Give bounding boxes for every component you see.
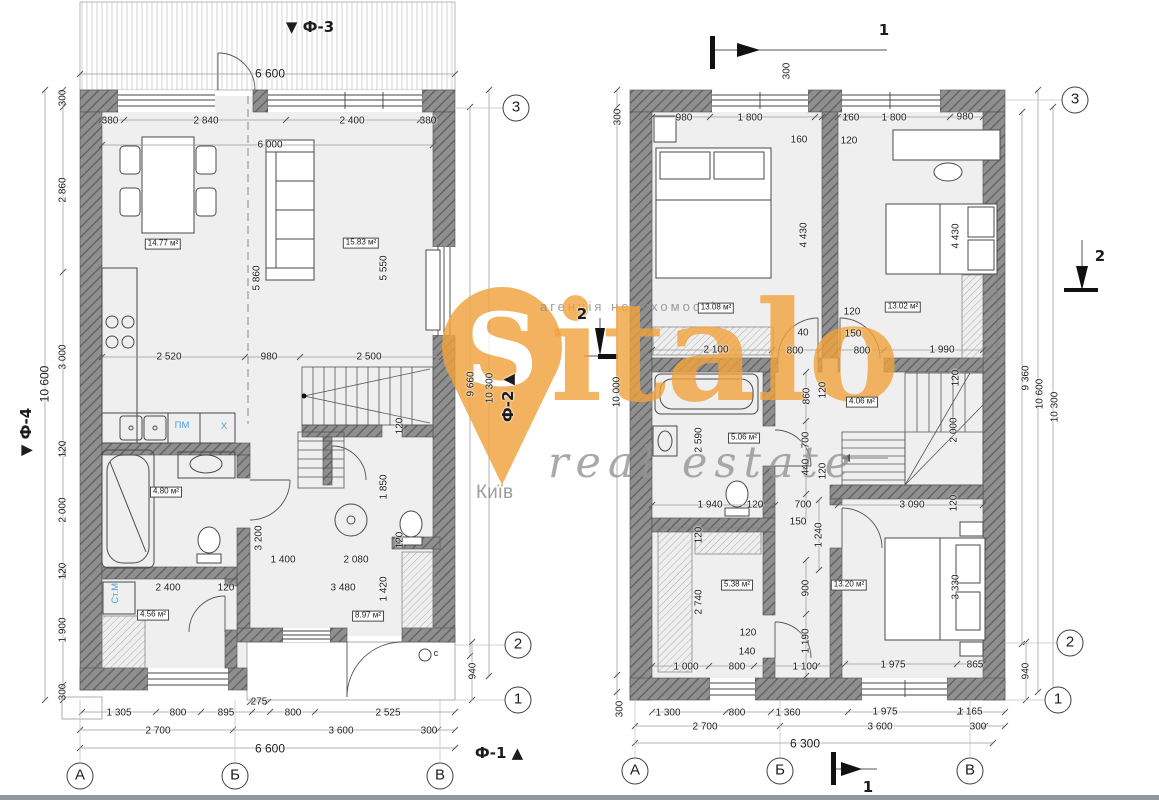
dimension-label: 2 525 xyxy=(375,708,400,719)
dimension-label: 800 xyxy=(787,346,804,357)
dimension-label: 940 xyxy=(1021,663,1032,680)
dimension-label: 4 430 xyxy=(951,223,962,248)
dimension-label: 9 360 xyxy=(1021,365,1032,390)
dimension-label: 10 000 xyxy=(612,377,623,408)
dimension-label: 2 500 xyxy=(356,352,381,363)
grid-axis-bubble: В xyxy=(957,758,984,785)
dimension-label: 1 900 xyxy=(58,617,69,642)
dimension-label: 1 800 xyxy=(881,113,906,124)
dimension-label: 120 xyxy=(694,527,705,544)
dimension-label: 2 400 xyxy=(339,116,364,127)
dimension-label: 980 xyxy=(676,113,693,124)
dimension-label: 1 100 xyxy=(792,662,817,673)
dimension-label: 120 xyxy=(949,495,960,512)
dimension-label: 860 xyxy=(802,388,813,405)
dimension-label: 1 800 xyxy=(737,113,762,124)
dimension-label: 440 xyxy=(801,459,812,476)
appliance-label: ПМ xyxy=(175,421,190,431)
dimension-label: 2 080 xyxy=(343,555,368,566)
dimension-label: 6 600 xyxy=(255,742,285,755)
dimension-label: 6 600 xyxy=(255,67,285,80)
dimension-label: 300 xyxy=(782,63,793,80)
dimension-label: 865 xyxy=(967,660,984,671)
dimension-label: 3 480 xyxy=(330,583,355,594)
dimension-label: 700 xyxy=(795,500,812,511)
dimension-label: 980 xyxy=(957,112,974,123)
facade-marker-label: Ф-2 ▲ xyxy=(500,374,517,422)
dimension-label: 700 xyxy=(801,432,812,449)
dimension-label: 3 200 xyxy=(254,525,265,550)
dimension-label: 150 xyxy=(790,517,807,528)
grid-axis-bubble: А xyxy=(622,758,649,785)
dimension-label: 2 700 xyxy=(145,726,170,737)
section-marker-label: 2 xyxy=(577,306,587,323)
dimension-label: 120 xyxy=(951,370,962,387)
dimension-label: c xyxy=(434,649,439,659)
section-marker-label: 2 xyxy=(1095,248,1105,265)
grid-axis-bubble: Б xyxy=(767,758,794,785)
dimension-label: 150 xyxy=(845,329,862,340)
dimension-label: 1 420 xyxy=(379,576,390,601)
dimension-label: 980 xyxy=(261,352,278,363)
room-area-label: 4.56 м² xyxy=(137,610,169,621)
dimension-label: 40 xyxy=(797,328,808,339)
dimension-label: 10 300 xyxy=(485,373,496,404)
dimension-label: 900 xyxy=(801,580,812,597)
dimension-label: 300 xyxy=(970,722,987,733)
room-area-label: 14.77 м² xyxy=(145,239,181,250)
facade-marker-label: ▼ Ф-4 xyxy=(18,408,35,456)
room-area-label: 15.83 м² xyxy=(343,238,379,249)
plan-labels-layer: ▼ Ф-36 6003802 8402 4003806 0003002 8603… xyxy=(0,0,1159,800)
dimension-label: 6 000 xyxy=(257,140,282,151)
dimension-label: 1 975 xyxy=(880,660,905,671)
dimension-label: 120 xyxy=(395,418,406,435)
dimension-label: 800 xyxy=(285,708,302,719)
room-area-label: 13.08 м² xyxy=(698,303,734,314)
section-marker-label: 1 xyxy=(879,22,889,39)
dimension-label: 2 740 xyxy=(694,589,705,614)
dimension-label: 120 xyxy=(818,382,829,399)
dimension-label: 800 xyxy=(854,346,871,357)
dimension-label: 300 xyxy=(58,90,69,107)
dimension-label: 1 975 xyxy=(872,707,897,718)
dimension-label: 120 xyxy=(395,532,406,549)
dimension-label: 120 xyxy=(740,628,757,639)
dimension-label: 800 xyxy=(170,708,187,719)
dimension-label: 380 xyxy=(102,116,119,127)
dimension-label: 300 xyxy=(613,109,624,126)
room-area-label: 4.06 м² xyxy=(846,397,878,408)
dimension-label: 3 090 xyxy=(899,500,924,511)
dimension-label: 2 000 xyxy=(949,417,960,442)
dimension-label: 5 860 xyxy=(252,265,263,290)
grid-axis-bubble: 1 xyxy=(505,687,532,714)
room-area-label: 5.38 м² xyxy=(721,580,753,591)
room-area-label: 8.97 м² xyxy=(352,611,384,622)
dimension-label: 120 xyxy=(58,441,69,458)
dimension-label: 800 xyxy=(729,662,746,673)
dimension-label: 1 165 xyxy=(957,707,982,718)
dimension-label: 10 600 xyxy=(1035,379,1046,410)
dimension-label: 2 590 xyxy=(694,427,705,452)
dimension-label: 2 840 xyxy=(193,116,218,127)
grid-axis-bubble: 1 xyxy=(1045,687,1072,714)
room-area-label: 5.06 м² xyxy=(728,433,760,444)
grid-axis-bubble: В xyxy=(427,763,454,790)
appliance-label: Х xyxy=(221,422,227,432)
grid-axis-bubble: 2 xyxy=(505,632,532,659)
grid-axis-bubble: 2 xyxy=(1057,630,1084,657)
dimension-label: 2 100 xyxy=(703,345,728,356)
dimension-label: 1 850 xyxy=(379,474,390,499)
dimension-label: 2 000 xyxy=(58,497,69,522)
dimension-label: 10 300 xyxy=(1050,392,1061,423)
dimension-label: 940 xyxy=(468,663,479,680)
dimension-label: 160 xyxy=(791,135,808,146)
dimension-label: 300 xyxy=(58,684,69,701)
room-area-label: 13.20 м² xyxy=(831,580,867,591)
dimension-label: 3 330 xyxy=(951,574,962,599)
dimension-label: 3 600 xyxy=(867,722,892,733)
dimension-label: 300 xyxy=(421,726,438,737)
dimension-label: 1 300 xyxy=(655,708,680,719)
dimension-label: 1 190 xyxy=(801,628,812,653)
dimension-label: 4 430 xyxy=(799,222,810,247)
dimension-label: 1 240 xyxy=(814,522,825,547)
dimension-label: 275 xyxy=(251,697,268,708)
dimension-label: 120 xyxy=(218,583,235,594)
dimension-label: 120 xyxy=(841,136,858,147)
dimension-label: 5 550 xyxy=(379,255,390,280)
dimension-label: 9 660 xyxy=(466,371,477,396)
dimension-label: 6 300 xyxy=(790,737,820,750)
grid-axis-bubble: 3 xyxy=(1062,87,1089,114)
section-marker-label: 1 xyxy=(863,779,873,796)
dimension-label: 380 xyxy=(420,116,437,127)
dimension-label: 300 xyxy=(615,701,626,718)
dimension-label: 1 360 xyxy=(775,708,800,719)
dimension-label: 1 400 xyxy=(270,555,295,566)
grid-axis-bubble: А xyxy=(67,763,94,790)
dimension-label: 120 xyxy=(747,500,764,511)
dimension-label: 2 520 xyxy=(156,352,181,363)
dimension-label: 120 xyxy=(58,563,69,580)
dimension-label: 1 990 xyxy=(929,345,954,356)
dimension-label: 140 xyxy=(739,647,756,658)
room-area-label: 4.80 м² xyxy=(150,487,182,498)
dimension-label: 3 000 xyxy=(58,344,69,369)
dimension-label: 10 600 xyxy=(38,366,51,403)
facade-marker-label: Ф-1 ▲ xyxy=(475,745,523,762)
dimension-label: 3 600 xyxy=(328,726,353,737)
dimension-label: 895 xyxy=(218,708,235,719)
dimension-label: 2 860 xyxy=(58,177,69,202)
dimension-label: 160 xyxy=(843,113,860,124)
dimension-label: 2 400 xyxy=(155,583,180,594)
bottom-border-bar xyxy=(0,795,1159,800)
floor-plan-page: S агенція нерухомості italo real estate … xyxy=(0,0,1159,800)
dimension-label: 1 940 xyxy=(697,500,722,511)
dimension-label: 120 xyxy=(844,307,861,318)
grid-axis-bubble: Б xyxy=(222,763,249,790)
dimension-label: 1 305 xyxy=(106,708,131,719)
facade-marker-label: ▼ Ф-3 xyxy=(286,19,334,36)
dimension-label: 800 xyxy=(729,708,746,719)
room-area-label: 13.02 м² xyxy=(885,302,921,313)
dimension-label: 1 000 xyxy=(673,662,698,673)
appliance-label: Ст.М. xyxy=(111,580,121,603)
dimension-label: 120 xyxy=(818,463,829,480)
dimension-label: 2 700 xyxy=(692,722,717,733)
grid-axis-bubble: 3 xyxy=(503,95,530,122)
